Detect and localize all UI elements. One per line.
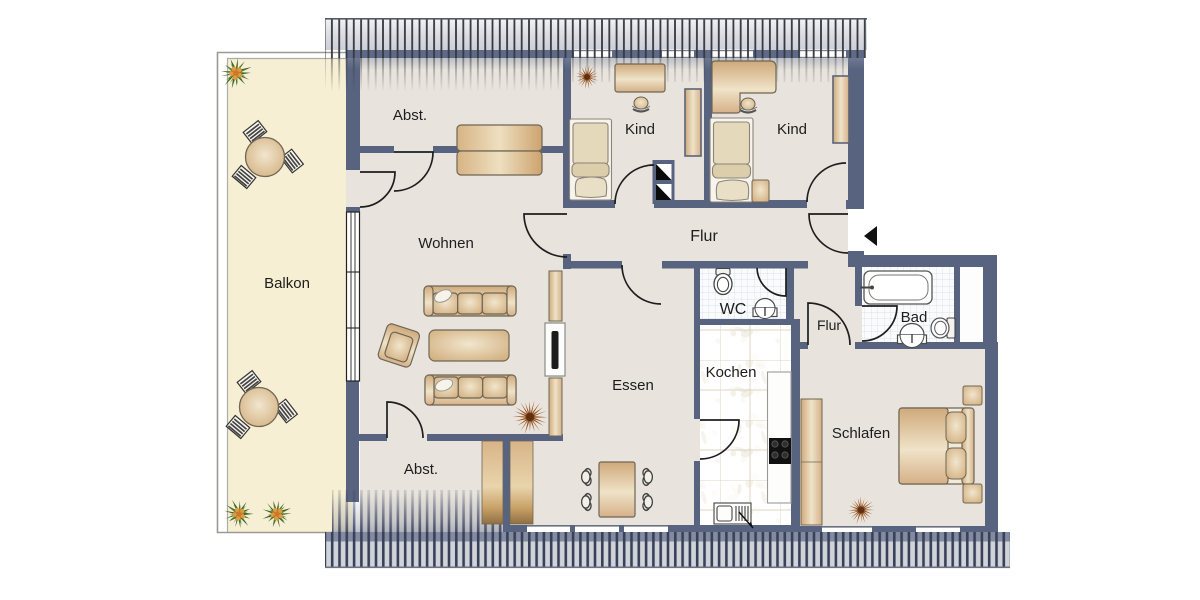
svg-text:WC: WC xyxy=(720,301,747,318)
svg-text:Abst.: Abst. xyxy=(393,107,427,124)
svg-text:Kochen: Kochen xyxy=(706,364,757,381)
svg-text:Wohnen: Wohnen xyxy=(418,235,474,252)
svg-text:Schlafen: Schlafen xyxy=(832,425,890,442)
svg-text:Bad: Bad xyxy=(901,309,928,326)
svg-text:Essen: Essen xyxy=(612,377,654,394)
svg-text:Kind: Kind xyxy=(625,121,655,138)
svg-text:Kind: Kind xyxy=(777,121,807,138)
svg-text:Flur: Flur xyxy=(817,317,841,333)
svg-text:Balkon: Balkon xyxy=(264,275,310,292)
svg-text:Flur: Flur xyxy=(690,228,718,245)
svg-text:Abst.: Abst. xyxy=(404,461,438,478)
